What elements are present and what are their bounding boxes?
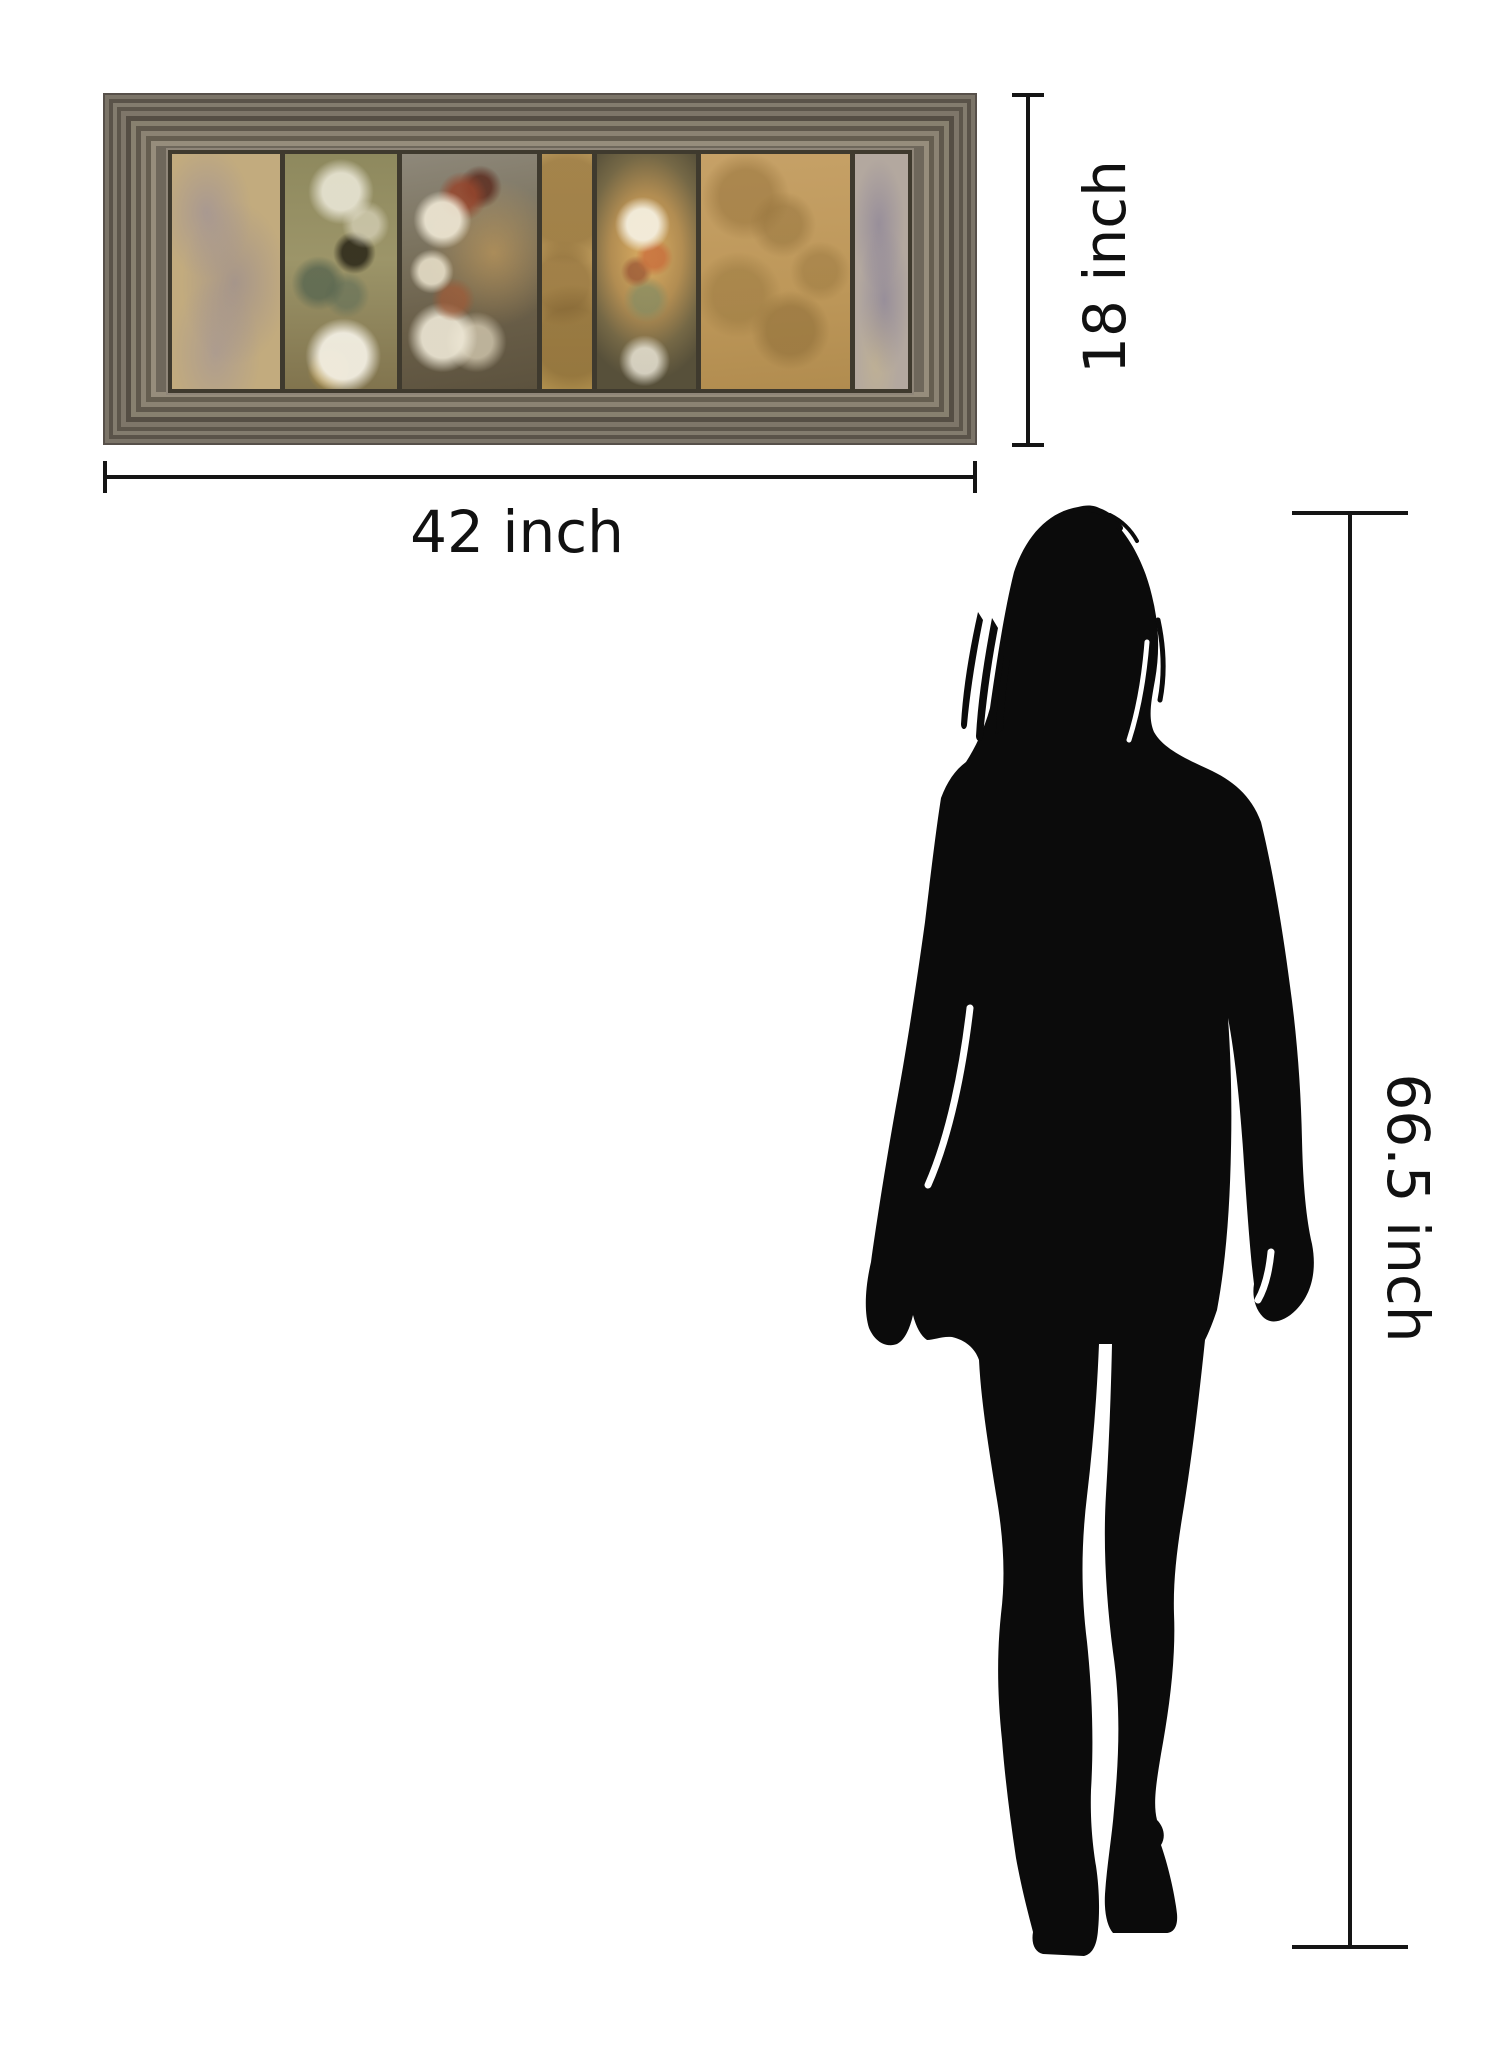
height-dimension-top-cap	[1012, 93, 1044, 97]
artwork-frame	[103, 93, 977, 445]
woman-silhouette-image	[855, 495, 1355, 1965]
height-dimension-label: 18 inch	[1075, 97, 1135, 437]
width-dimension-label: 42 inch	[347, 498, 687, 566]
artwork-panel-large-floral	[402, 154, 537, 389]
hair-shoulder-gap-highlight	[1162, 706, 1207, 752]
person-height-dimension-label: 66.5 inch	[1378, 1038, 1438, 1378]
artwork-panel-speckled-right	[855, 154, 908, 389]
height-dimension-line	[1026, 93, 1030, 447]
woman-silhouette	[866, 505, 1314, 1956]
width-dimension-line	[103, 475, 977, 479]
artwork-panel-chrysanthemum	[285, 154, 398, 389]
artwork-panel-gold-bamboo	[542, 154, 592, 389]
width-dimension-left-cap	[103, 461, 107, 493]
woman-body-outline	[866, 505, 1314, 1956]
size-comparison-diagram: 42 inch 18 inch 66.5 inch	[0, 0, 1500, 2048]
artwork-panel-leaf-print	[701, 154, 850, 389]
artwork-panels	[166, 148, 914, 395]
artwork-panel-speckled-left	[172, 154, 280, 389]
width-dimension-right-cap	[973, 461, 977, 493]
artwork-panel-bouquet	[597, 154, 696, 389]
height-dimension-bottom-cap	[1012, 443, 1044, 447]
hair-wisp	[1158, 620, 1163, 700]
